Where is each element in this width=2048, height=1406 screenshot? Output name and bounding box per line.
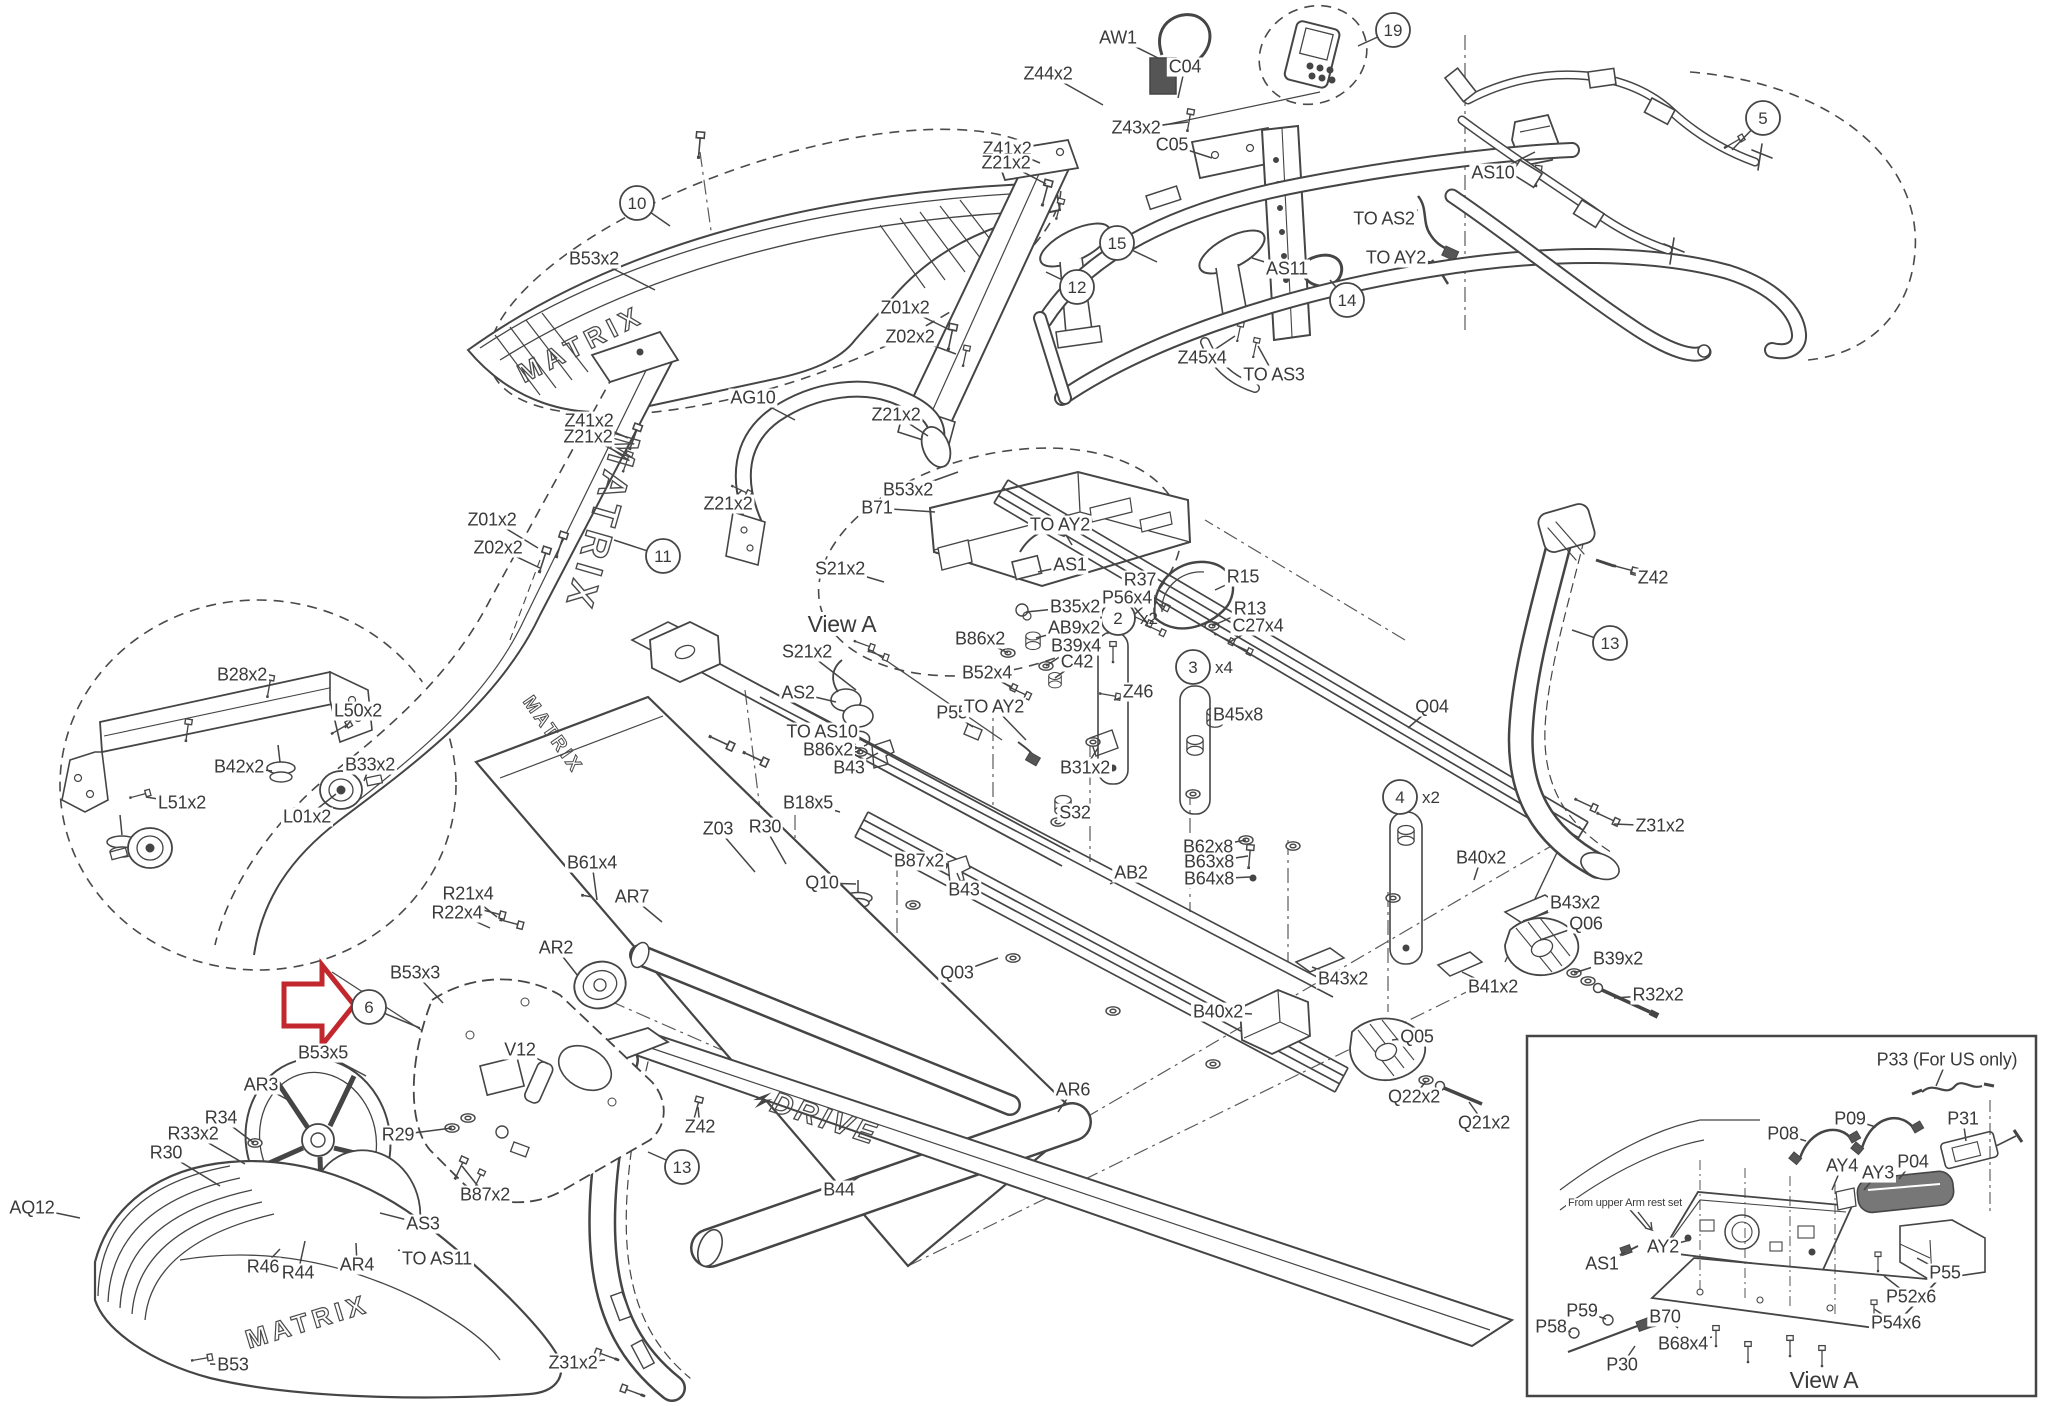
part-label-z31x2: Z31x2	[546, 1354, 599, 1373]
part-label-l01x2: L01x2	[281, 808, 333, 827]
part-labels-layer: AW1C04Z44x2Z43x2C05AS10TO AS2TO AY2AS11Z…	[0, 0, 2048, 1406]
part-label-b39x2: B39x2	[1591, 950, 1645, 969]
part-label-b64x8: B64x8	[1182, 870, 1236, 889]
part-label-ar3: AR3	[242, 1076, 280, 1095]
part-label-ay2: AY2	[1645, 1238, 1681, 1257]
part-label-r22x4: R22x4	[429, 904, 484, 923]
part-label-to-ay2: TO AY2	[1364, 249, 1428, 268]
part-label-b28x2: B28x2	[215, 666, 269, 685]
part-label-q10: Q10	[803, 874, 840, 893]
part-label-b31x2: B31x2	[1058, 759, 1112, 778]
part-label-z21x2: Z21x2	[869, 406, 922, 425]
part-label-p54x6: P54x6	[1869, 1314, 1923, 1333]
part-label-r46: R46	[245, 1258, 281, 1277]
part-label-to-ay2: TO AY2	[962, 698, 1026, 717]
part-label-c42: C42	[1059, 653, 1095, 672]
part-label-ay3: AY3	[1860, 1164, 1896, 1183]
part-label-aw1: AW1	[1097, 29, 1139, 48]
part-label-r30: R30	[148, 1144, 184, 1163]
part-label-b87x2: B87x2	[892, 852, 946, 871]
part-label-b87x2: B87x2	[458, 1186, 512, 1205]
part-label-p09: P09	[1832, 1110, 1867, 1129]
part-label-z31x2: Z31x2	[1633, 817, 1686, 836]
part-label-b43x2: B43x2	[1548, 894, 1602, 913]
part-label-s21x2: S21x2	[780, 643, 834, 662]
part-label-ar2: AR2	[537, 939, 575, 958]
part-label-p52x6: P52x6	[1884, 1288, 1938, 1307]
part-label-b43: B43	[831, 759, 866, 778]
part-label-q05: Q05	[1398, 1028, 1435, 1047]
part-label-to-as11: TO AS11	[400, 1250, 474, 1269]
part-label-s21x2: S21x2	[813, 560, 867, 579]
part-label-z02x2: Z02x2	[883, 328, 936, 347]
part-label-p55: P55	[1927, 1264, 1962, 1283]
part-label-r29: R29	[380, 1126, 416, 1145]
part-label-r33x2: R33x2	[165, 1125, 220, 1144]
part-label-q21x2: Q21x2	[1456, 1114, 1512, 1133]
part-label-b41x2: B41x2	[1466, 978, 1520, 997]
part-label-z42: Z42	[1636, 569, 1670, 588]
part-label-to-as3: TO AS3	[1241, 366, 1307, 385]
part-label-p30: P30	[1604, 1356, 1639, 1375]
part-label-as11: AS11	[1264, 260, 1310, 279]
part-label-r15: R15	[1225, 568, 1261, 587]
part-label-z21x2: Z21x2	[561, 428, 614, 447]
part-label-r21x4: R21x4	[440, 885, 495, 904]
part-label-z46: Z46	[1121, 683, 1155, 702]
part-label-r32x2: R32x2	[1630, 986, 1685, 1005]
part-label-q04: Q04	[1413, 698, 1450, 717]
part-label-as1: AS1	[1583, 1255, 1620, 1274]
part-label-as1: AS1	[1051, 556, 1088, 575]
part-label-b35x2: B35x2	[1048, 598, 1102, 617]
part-label-ab2: AB2	[1112, 864, 1149, 883]
part-label-z21x2: Z21x2	[701, 495, 754, 514]
part-label-ar4: AR4	[338, 1256, 376, 1275]
part-label-z44x2: Z44x2	[1021, 65, 1074, 84]
part-label-ag10: AG10	[728, 389, 777, 408]
part-label-b68x4: B68x4	[1656, 1335, 1710, 1354]
part-label-as3: AS3	[404, 1215, 441, 1234]
part-label-z42: Z42	[683, 1118, 717, 1137]
part-label-b42x2: B42x2	[212, 758, 266, 777]
part-label-r44: R44	[280, 1264, 316, 1283]
part-label-b43: B43	[946, 881, 981, 900]
part-label-b33x2: B33x2	[343, 756, 397, 775]
part-label-b18x5: B18x5	[781, 794, 835, 813]
part-label-l50x2: L50x2	[332, 702, 384, 721]
part-label-l51x2: L51x2	[156, 794, 208, 813]
part-label-b40x2: B40x2	[1191, 1003, 1245, 1022]
part-label-view-a: View A	[806, 612, 879, 636]
part-label-b53x3: B53x3	[388, 964, 442, 983]
part-label-z01x2: Z01x2	[878, 299, 931, 318]
part-label-b70: B70	[1647, 1308, 1682, 1327]
part-label-q06: Q06	[1567, 915, 1604, 934]
part-label-b40x2: B40x2	[1454, 849, 1508, 868]
part-label-r30: R30	[747, 818, 783, 837]
part-label-b53x2: B53x2	[567, 250, 621, 269]
part-label-q22x2: Q22x2	[1386, 1088, 1442, 1107]
part-label-from-upper-arm-rest-set: From upper Arm rest set	[1566, 1198, 1684, 1210]
part-label-b86x2: B86x2	[953, 630, 1007, 649]
part-label-c04: C04	[1167, 58, 1203, 77]
part-label-view-a: View A	[1788, 1368, 1861, 1392]
part-label-z45x4: Z45x4	[1175, 349, 1228, 368]
part-label-ay4: AY4	[1824, 1157, 1860, 1176]
part-label-c27x4: C27x4	[1230, 617, 1285, 636]
part-label-b43x2: B43x2	[1316, 970, 1370, 989]
part-label-p08: P08	[1765, 1125, 1800, 1144]
part-label-z21x2: Z21x2	[979, 154, 1032, 173]
part-label-aq12: AQ12	[7, 1199, 56, 1218]
part-label-ar7: AR7	[613, 888, 651, 907]
part-label-b52x4: B52x4	[960, 664, 1014, 683]
part-label-q03: Q03	[938, 964, 975, 983]
part-label-s32: S32	[1057, 804, 1092, 823]
part-label-as2: AS2	[779, 684, 816, 703]
part-label-p58: P58	[1533, 1318, 1568, 1337]
part-label-p59: P59	[1564, 1302, 1599, 1321]
part-label-z02x2: Z02x2	[471, 539, 524, 558]
part-label-b53x5: B53x5	[296, 1044, 350, 1063]
part-label-ar6: AR6	[1054, 1081, 1092, 1100]
part-label-b45x8: B45x8	[1211, 706, 1265, 725]
part-label-p33-for-us-only-: P33 (For US only)	[1875, 1051, 2020, 1070]
part-label-b61x4: B61x4	[565, 854, 619, 873]
part-label-p56x4: P56x4	[1100, 589, 1154, 608]
part-label-b44: B44	[821, 1181, 856, 1200]
part-label-p31: P31	[1945, 1110, 1980, 1129]
part-label-z01x2: Z01x2	[465, 511, 518, 530]
part-label-c05: C05	[1154, 136, 1190, 155]
part-label-b71: B71	[859, 499, 894, 518]
part-label-p04: P04	[1895, 1153, 1930, 1172]
part-label-to-ay2: TO AY2	[1028, 516, 1092, 535]
part-label-b53: B53	[215, 1356, 250, 1375]
part-label-to-as2: TO AS2	[1351, 210, 1417, 229]
part-label-z03: Z03	[701, 820, 735, 839]
part-label-as10: AS10	[1469, 164, 1516, 183]
part-label-v12: V12	[502, 1041, 537, 1060]
parts-diagram-page: MATRIX MATRIX	[0, 0, 2048, 1406]
